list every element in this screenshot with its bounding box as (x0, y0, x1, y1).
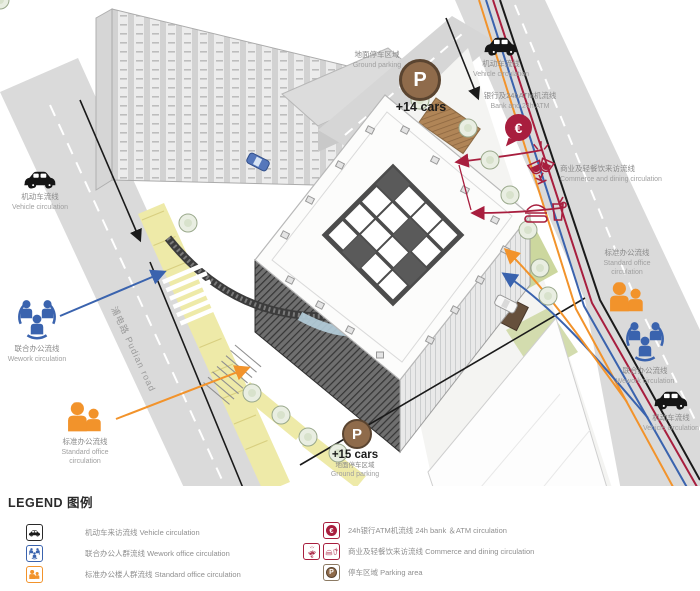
annotation-zh: 银行及24hATM机流线 (468, 91, 572, 102)
legend-title: LEGEND 图例 (8, 492, 93, 511)
annotation-zh: 联合办公流线 (612, 366, 678, 377)
annotation-en: circulation (54, 457, 116, 467)
annotation-commerce-dining: 商业及轻餐饮来访流线 Commerce and dining circulati… (560, 164, 700, 184)
car-icon (28, 529, 41, 537)
legend-column-right: € 24h银行ATM机流线 24h bank ＆ATM circulation … (298, 522, 534, 585)
annotation-zh: 商业及轻餐饮来访流线 (560, 164, 700, 175)
annotation-en: Wework circulation (4, 355, 70, 365)
car-icon (652, 388, 690, 411)
legend-box (26, 524, 43, 541)
legend-box: P (323, 564, 340, 581)
euro-atm-icon: € (326, 525, 337, 536)
annotation-en: Standard office (54, 448, 116, 458)
annotation-standard-office-right: 标准办公流线 Standard office circulation (596, 248, 658, 317)
wework-group-icon (28, 547, 41, 560)
legend-item-label: 标准办公楼人群流线 Standard office circulation (85, 569, 241, 580)
parking-icon: P (399, 59, 441, 101)
legend-item-commerce-dining: 商业及轻餐饮来访流线 Commerce and dining circulati… (298, 543, 534, 560)
annotation-wework-left: 联合办公流线 Wework circulation (4, 296, 70, 364)
euro-atm-icon: € (505, 114, 532, 141)
annotation-ground-parking-bottom: 地面停车区域 Ground parking (324, 461, 386, 480)
legend-item-label: 联合办公人群流线 Wework office circulation (85, 548, 230, 559)
car-icon (22, 168, 58, 190)
parking-count: +14 cars (386, 100, 456, 114)
annotation-en: Ground parking (324, 470, 386, 480)
legend-box: € (323, 522, 340, 539)
annotation-zh: 机动车流线 (642, 413, 700, 424)
legend-box (26, 566, 43, 583)
legend-item-label: 停车区域 Parking area (348, 567, 423, 578)
legend-box (323, 543, 340, 560)
annotation-vehicle-top-right: 机动车流线 Vehicle circulation (455, 34, 547, 79)
annotation-zh: 机动车流线 (4, 192, 76, 203)
wine-glasses-icon (306, 545, 318, 559)
standard-office-group-icon (64, 402, 106, 435)
parking-icon: P (342, 419, 372, 449)
annotation-vehicle-right: 机动车流线 Vehicle circulation (642, 388, 700, 433)
site-circulation-diagram: 浦电路 Pudian road 机动车流线 Vehicle circulatio… (0, 0, 700, 591)
food-drink-icon (522, 194, 568, 226)
legend-item-label: 机动车来访流线 Vehicle circulation (85, 527, 200, 538)
annotation-en: Vehicle circulation (642, 424, 700, 434)
annotation-standard-office-left: 标准办公流线 Standard office circulation (54, 402, 116, 467)
legend-item-wework: 联合办公人群流线 Wework office circulation (26, 545, 241, 562)
standard-office-group-icon (606, 282, 648, 315)
legend-item-bank-atm: € 24h银行ATM机流线 24h bank ＆ATM circulation (298, 522, 534, 539)
parking-count: +15 cars (326, 449, 384, 461)
annotation-zh: 机动车流线 (455, 59, 547, 70)
annotation-zh: 地面停车区域 (324, 461, 386, 470)
annotation-wework-right: 联合办公流线 Wework circulation (612, 318, 678, 386)
legend-item-label: 商业及轻餐饮来访流线 Commerce and dining circulati… (348, 546, 534, 557)
parking-icon: P (326, 567, 337, 578)
annotation-en: Wework circulation (612, 377, 678, 387)
annotation-en: Bank and 24h ATM (468, 102, 572, 112)
annotation-en: Commerce and dining circulation (560, 175, 700, 185)
legend-column-left: 机动车来访流线 Vehicle circulation 联合办公人群流线 Wew… (26, 524, 241, 587)
annotation-zh: 联合办公流线 (4, 344, 70, 355)
annotation-en: Vehicle circulation (455, 70, 547, 80)
annotation-zh: 地面停车区域 (336, 50, 418, 61)
legend-item-standard-office: 标准办公楼人群流线 Standard office circulation (26, 566, 241, 583)
legend: LEGEND 图例 机动车来访流线 Vehicle circulation 联合… (0, 486, 700, 591)
annotation-en: circulation (596, 268, 658, 278)
legend-item-vehicle: 机动车来访流线 Vehicle circulation (26, 524, 241, 541)
wework-group-icon (14, 296, 60, 342)
legend-box (303, 543, 320, 560)
annotation-vehicle-top-left: 机动车流线 Vehicle circulation (4, 168, 76, 212)
annotation-en: Standard office (596, 259, 658, 269)
annotation-zh: 标准办公流线 (54, 437, 116, 448)
car-icon (482, 34, 520, 57)
wine-glasses-icon (520, 138, 562, 188)
annotation-en: Vehicle circulation (4, 203, 76, 213)
legend-box (26, 545, 43, 562)
legend-item-label: 24h银行ATM机流线 24h bank ＆ATM circulation (348, 525, 507, 536)
legend-item-parking: P 停车区域 Parking area (298, 564, 534, 581)
annotation-bank-atm: 银行及24hATM机流线 Bank and 24h ATM (468, 91, 572, 111)
wework-group-icon (622, 318, 668, 364)
standard-office-group-icon (28, 570, 41, 580)
food-drink-icon (325, 547, 338, 556)
annotation-zh: 标准办公流线 (596, 248, 658, 259)
